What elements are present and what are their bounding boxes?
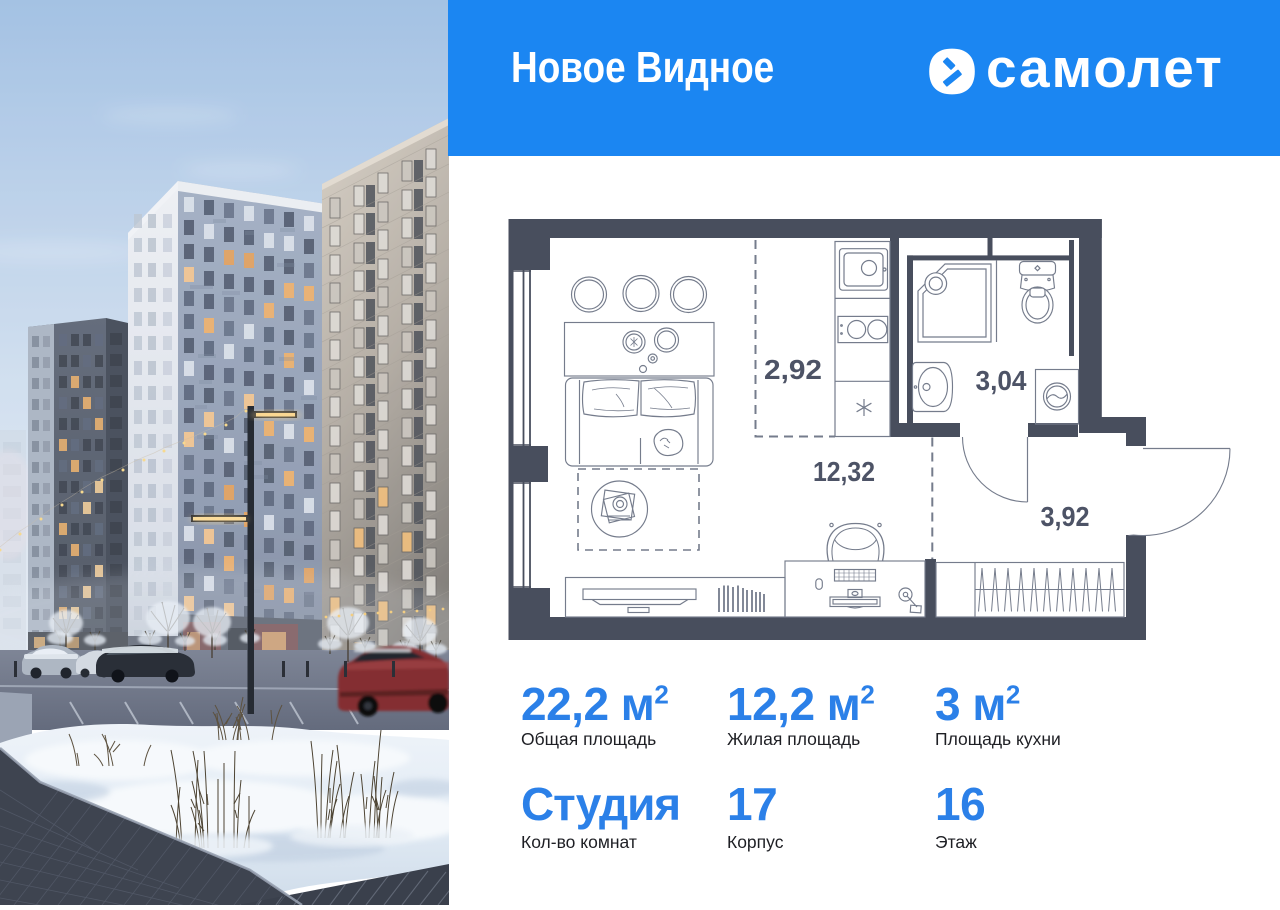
svg-text:3,04: 3,04 (976, 365, 1027, 396)
svg-text:2,92: 2,92 (764, 354, 822, 385)
svg-text:12,32: 12,32 (813, 456, 875, 487)
svg-text:3,92: 3,92 (1041, 501, 1090, 532)
